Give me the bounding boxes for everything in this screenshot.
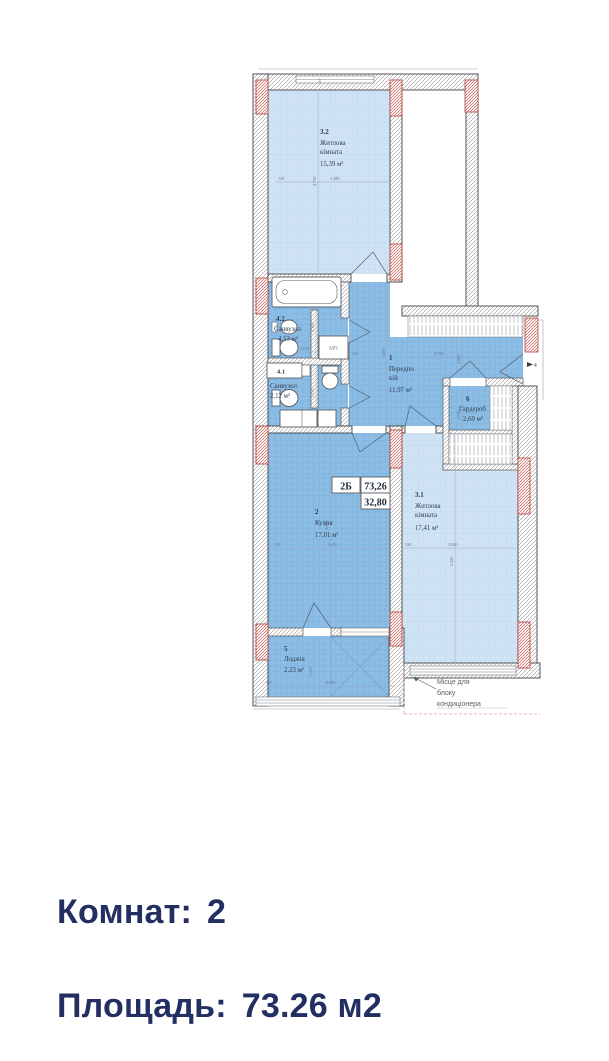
area-value: 73.26 м2 (242, 987, 382, 1026)
svg-text:кій: кій (389, 375, 398, 382)
wall-hall-wet-a (341, 282, 349, 318)
wall-wardrobe-right (512, 386, 518, 464)
svg-text:2,12 м²: 2,12 м² (270, 393, 290, 400)
entrance-marker: 4 (534, 363, 537, 369)
ac-note-line3: кондиціонера (437, 700, 481, 708)
cabinet-icon (280, 410, 336, 427)
kitchen-floor (268, 433, 390, 628)
svg-text:11,97 м²: 11,97 м² (389, 387, 412, 394)
dim-label: 4.750 (434, 351, 443, 356)
wall-wardrobe-left (443, 386, 449, 470)
wall-boundary-right (466, 90, 478, 316)
dim-label: 2.990 (326, 680, 335, 685)
rooms-summary: Комнат: 2 (57, 893, 226, 932)
dim-label: 2.010 (300, 346, 309, 351)
wall-loggia-b (331, 628, 341, 636)
unit-total-area: 73,26 (364, 482, 387, 493)
svg-text:Житлова: Житлова (320, 140, 345, 147)
dim-label: 3.050 (448, 542, 457, 547)
dim-label: 410 (318, 78, 322, 84)
wall-hall-wet-c (341, 408, 349, 426)
wall-left (253, 74, 268, 706)
svg-text:3.2: 3.2 (320, 128, 329, 136)
ac-note-line2: блоку (437, 689, 456, 697)
dim-label: 120 (274, 542, 280, 547)
svg-text:3.1: 3.1 (415, 491, 424, 499)
dim-label: 5.520 (449, 557, 454, 566)
svg-text:17,41 м²: 17,41 м² (415, 525, 438, 532)
ac-arrow-icon (413, 677, 420, 682)
rooms-label: Комнат: (57, 893, 192, 932)
svg-text:4.1: 4.1 (277, 369, 285, 376)
window-living (410, 666, 516, 675)
wall-kitchen-top-c (436, 426, 443, 433)
svg-text:17,01 м²: 17,01 м² (315, 532, 338, 539)
window-loggia (256, 697, 400, 706)
svg-text:кімната: кімната (320, 149, 342, 156)
rooms-value: 2 (207, 893, 226, 932)
dim-label: 120 (352, 351, 358, 356)
entry-closet-band (408, 316, 523, 337)
svg-text:4.2: 4.2 (276, 315, 285, 323)
svg-text:Лоджія: Лоджія (284, 656, 305, 663)
dim-label: 2.300 (310, 323, 315, 332)
svg-text:кімната: кімната (415, 512, 437, 519)
wall-wardrobe-mid (449, 430, 514, 434)
svg-text:Санвузол: Санвузол (274, 326, 302, 333)
svg-text:2: 2 (315, 508, 319, 516)
wall-loggia-a (268, 628, 303, 636)
dim-label: 1.850 (456, 355, 461, 364)
unit-living-area: 32,80 (364, 498, 387, 509)
dim-label: 1.550 (308, 667, 313, 676)
svg-text:5: 5 (284, 645, 288, 653)
svg-text:Передпо: Передпо (389, 366, 414, 373)
dim-label: 120 (278, 176, 284, 181)
room-4-1-plate-tab (302, 365, 310, 376)
dim-label: 4.730 (312, 177, 317, 186)
dim-label: 250 (266, 681, 272, 685)
ac-note-line1: Місце для (437, 678, 470, 686)
svg-text:4,53 м²: 4,53 м² (278, 336, 298, 343)
svg-text:Гардероб: Гардероб (459, 406, 486, 413)
svg-text:1: 1 (389, 354, 393, 362)
dim-label: 1.150 (310, 389, 315, 398)
wall-entry-top (402, 306, 538, 316)
wall-wardrobe-top-a (443, 378, 450, 386)
entrance-arrow-icon (527, 362, 533, 367)
dim-label: 3.800 (381, 349, 386, 358)
svg-text:Кухня: Кухня (315, 520, 333, 527)
pier-entrance (525, 318, 538, 352)
svg-text:Санвузол: Санвузол (270, 383, 298, 390)
bidet-icon (322, 366, 338, 389)
wall-wardrobe-bottom (443, 464, 518, 470)
wall-wardrobe-top-b (486, 378, 523, 386)
svg-text:2,23 м²: 2,23 м² (284, 667, 304, 674)
unit-type: 2Б (340, 482, 352, 493)
dim-label: 120 (405, 542, 411, 547)
washing-machine-label: МП (329, 346, 338, 352)
area-summary: Площадь: 73.26 м2 (57, 987, 382, 1026)
bathtub-icon (272, 277, 341, 307)
area-label: Площадь: (57, 987, 227, 1026)
dim-label: 3.410 (328, 542, 337, 547)
svg-text:15,39 м²: 15,39 м² (320, 161, 343, 168)
dim-label: 3.280 (330, 176, 339, 181)
svg-text:Житлова: Житлова (415, 503, 440, 510)
svg-text:6: 6 (466, 395, 470, 403)
svg-text:2,60 м²: 2,60 м² (463, 416, 483, 423)
